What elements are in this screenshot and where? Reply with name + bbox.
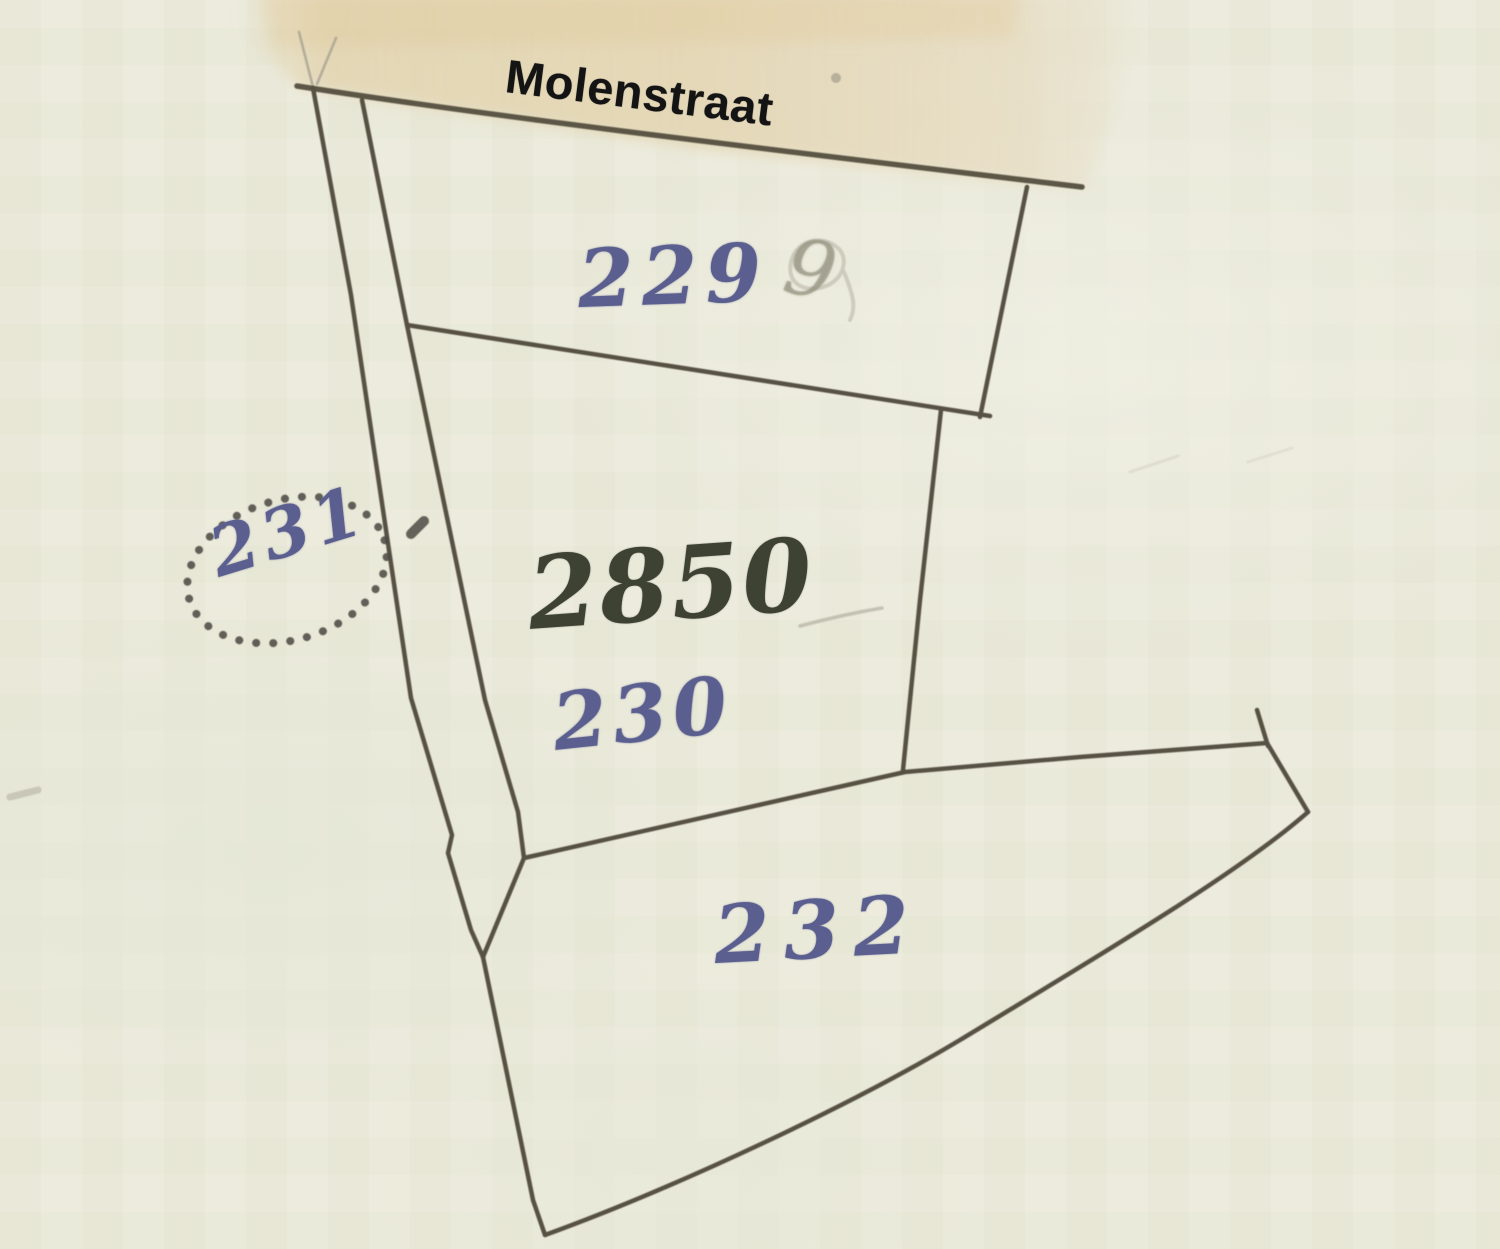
pencil-smudge-left-edge <box>10 790 38 797</box>
parcel-232-west-boundary <box>483 957 545 1235</box>
parcel-229-south-boundary <box>407 325 990 416</box>
pencil-smudge-right-1 <box>1130 456 1178 472</box>
parcel-232-tip-overshoot <box>1257 710 1268 746</box>
parcel-229-east-boundary <box>980 187 1027 417</box>
parcel-label-229: 229 <box>576 225 770 326</box>
paper-speck <box>831 73 841 83</box>
parcel-232-east-boundary <box>1267 743 1308 812</box>
parcel-label-232: 232 <box>712 877 926 982</box>
parcel-label-2850: 2850 <box>524 515 818 653</box>
boundary-blob-mark <box>411 521 424 534</box>
parcel-230-east-boundary <box>903 410 941 770</box>
pencil-smudge-right-2 <box>1248 448 1292 462</box>
parcel-label-230: 230 <box>548 659 737 768</box>
cadastral-map: Molenstraat 229 9 2850 230 231 232 <box>0 0 1500 1249</box>
parcel-232-south-boundary <box>545 812 1308 1235</box>
